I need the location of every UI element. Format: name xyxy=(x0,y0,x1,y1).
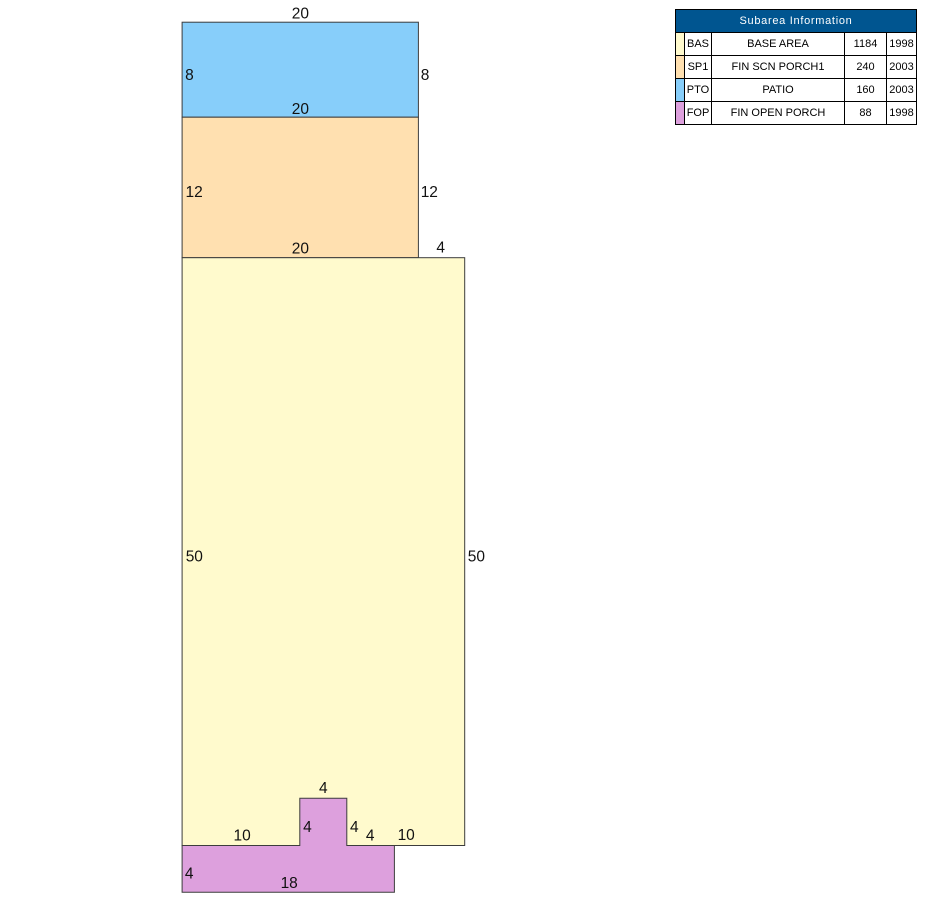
svg-text:50: 50 xyxy=(468,549,486,566)
svg-text:4: 4 xyxy=(350,819,359,836)
svg-text:8: 8 xyxy=(185,67,194,84)
svg-text:10: 10 xyxy=(233,827,251,844)
svg-text:20: 20 xyxy=(292,6,310,23)
svg-text:4: 4 xyxy=(319,780,328,797)
svg-text:12: 12 xyxy=(421,184,438,201)
svg-text:4: 4 xyxy=(366,828,375,845)
svg-text:8: 8 xyxy=(421,67,430,84)
svg-text:10: 10 xyxy=(398,827,416,844)
svg-text:50: 50 xyxy=(186,549,204,566)
svg-text:20: 20 xyxy=(292,101,310,118)
svg-text:20: 20 xyxy=(292,241,310,258)
svg-text:4: 4 xyxy=(303,819,312,836)
svg-text:12: 12 xyxy=(186,184,203,201)
svg-text:18: 18 xyxy=(281,875,298,892)
svg-text:4: 4 xyxy=(436,240,445,257)
svg-text:4: 4 xyxy=(185,865,194,882)
